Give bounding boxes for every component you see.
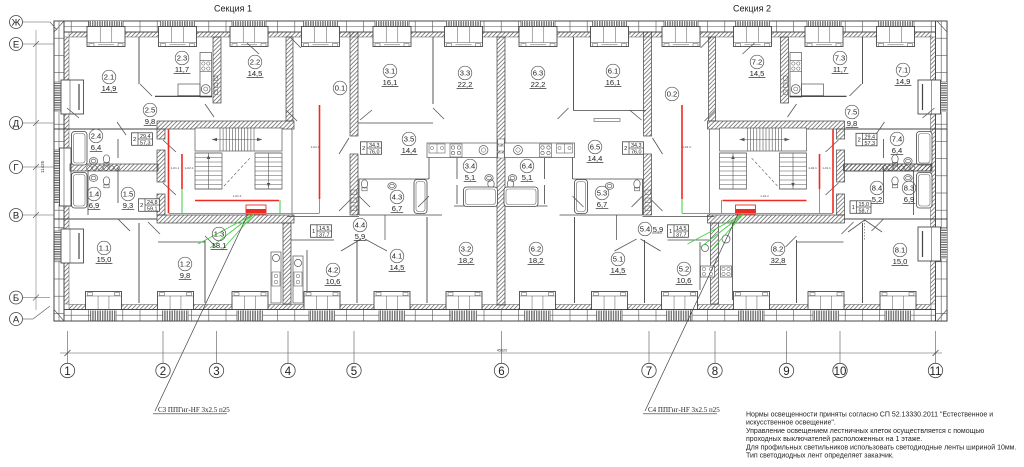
svg-text:29,4: 29,4 bbox=[865, 135, 876, 141]
svg-text:14,5: 14,5 bbox=[676, 226, 687, 232]
svg-text:34,3: 34,3 bbox=[369, 143, 380, 149]
svg-text:10,6: 10,6 bbox=[677, 276, 692, 285]
svg-text:18,2: 18,2 bbox=[529, 256, 544, 265]
svg-text:проходных выключателей располо: проходных выключателей расположенных на … bbox=[746, 435, 922, 443]
svg-text:2: 2 bbox=[160, 366, 166, 378]
svg-text:22,2: 22,2 bbox=[531, 80, 546, 89]
svg-text:9,8: 9,8 bbox=[847, 119, 858, 128]
svg-text:5.1: 5.1 bbox=[613, 255, 624, 264]
svg-text:9,8: 9,8 bbox=[145, 117, 156, 126]
svg-text:Управление освещением лестничн: Управление освещением лестничных клеток … bbox=[746, 428, 984, 435]
svg-text:15,0: 15,0 bbox=[859, 202, 870, 208]
svg-text:22,2: 22,2 bbox=[458, 80, 473, 89]
svg-text:76,0: 76,0 bbox=[631, 149, 642, 155]
svg-text:Г: Г bbox=[13, 162, 18, 173]
svg-text:14,5: 14,5 bbox=[611, 266, 626, 275]
svg-text:18,1: 18,1 bbox=[212, 241, 227, 250]
svg-text:Ж: Ж bbox=[12, 17, 21, 28]
svg-text:1-01.2: 1-01.2 bbox=[760, 194, 769, 198]
svg-text:В: В bbox=[13, 210, 19, 221]
svg-text:3: 3 bbox=[213, 366, 219, 378]
svg-text:14,5: 14,5 bbox=[750, 69, 765, 78]
svg-text:5.3: 5.3 bbox=[597, 189, 608, 198]
svg-text:6.5: 6.5 bbox=[590, 143, 601, 152]
svg-text:6,9: 6,9 bbox=[89, 201, 100, 210]
svg-text:14,9: 14,9 bbox=[896, 77, 911, 86]
svg-text:1: 1 bbox=[64, 366, 70, 378]
svg-text:6: 6 bbox=[498, 366, 504, 378]
svg-text:3.5: 3.5 bbox=[404, 135, 415, 144]
svg-text:7: 7 bbox=[646, 366, 652, 378]
svg-text:29,4: 29,4 bbox=[140, 134, 151, 140]
svg-text:24,8: 24,8 bbox=[147, 200, 158, 206]
svg-text:1-01.1: 1-01.1 bbox=[171, 166, 180, 170]
svg-text:76,0: 76,0 bbox=[369, 149, 380, 155]
svg-text:5,1: 5,1 bbox=[522, 173, 533, 182]
svg-text:Нормы освещенности приняты сог: Нормы освещенности приняты согласно СП 5… bbox=[746, 412, 993, 419]
svg-text:16,1: 16,1 bbox=[606, 78, 621, 87]
svg-text:6,7: 6,7 bbox=[392, 204, 403, 213]
svg-text:8.1: 8.1 bbox=[895, 246, 906, 255]
svg-text:искусственное освещение".: искусственное освещение". bbox=[746, 420, 836, 427]
svg-text:4.3: 4.3 bbox=[392, 193, 403, 202]
svg-text:7.5: 7.5 bbox=[847, 108, 858, 117]
svg-text:Для профильных светильников ис: Для профильных светильников использовать… bbox=[746, 443, 1016, 451]
svg-text:6,9: 6,9 bbox=[904, 195, 915, 204]
svg-text:6.4: 6.4 bbox=[522, 162, 533, 171]
svg-text:5,9: 5,9 bbox=[355, 232, 366, 241]
svg-text:14,5: 14,5 bbox=[319, 226, 330, 232]
svg-text:9,8: 9,8 bbox=[180, 271, 191, 280]
svg-text:15,0: 15,0 bbox=[97, 255, 112, 264]
svg-text:15,0: 15,0 bbox=[893, 257, 908, 266]
svg-text:7.3: 7.3 bbox=[835, 54, 846, 63]
svg-text:С4 ППГнг-HF 3х2.5 п25: С4 ППГнг-HF 3х2.5 п25 bbox=[648, 406, 720, 414]
svg-text:6,4: 6,4 bbox=[91, 143, 102, 152]
svg-text:1-01.1: 1-01.1 bbox=[822, 166, 831, 170]
svg-text:2: 2 bbox=[624, 146, 627, 152]
svg-text:Секция 2: Секция 2 bbox=[733, 4, 771, 14]
svg-text:2.2: 2.2 bbox=[250, 58, 261, 67]
svg-text:4: 4 bbox=[285, 366, 292, 378]
svg-text:1: 1 bbox=[669, 229, 672, 235]
svg-text:0.1: 0.1 bbox=[335, 84, 346, 93]
svg-text:1-02.1: 1-02.1 bbox=[808, 166, 817, 170]
svg-text:8: 8 bbox=[712, 366, 718, 378]
svg-text:1: 1 bbox=[312, 229, 315, 235]
svg-text:5,1: 5,1 bbox=[465, 173, 476, 182]
svg-text:32,8: 32,8 bbox=[771, 256, 786, 265]
svg-text:11,7: 11,7 bbox=[175, 65, 189, 74]
svg-text:7.2: 7.2 bbox=[752, 58, 763, 67]
svg-text:3.3: 3.3 bbox=[460, 69, 471, 78]
svg-text:1: 1 bbox=[852, 205, 855, 211]
svg-text:6,4: 6,4 bbox=[892, 146, 903, 155]
svg-text:1-02.1: 1-02.1 bbox=[185, 166, 194, 170]
svg-text:58,7: 58,7 bbox=[859, 208, 870, 214]
svg-text:9,3: 9,3 bbox=[123, 201, 134, 210]
svg-text:1-01.3: 1-01.3 bbox=[682, 145, 691, 149]
svg-text:1-01.3: 1-01.3 bbox=[311, 145, 320, 149]
svg-text:14,4: 14,4 bbox=[588, 154, 603, 163]
svg-text:5: 5 bbox=[351, 366, 357, 378]
svg-text:3.2: 3.2 bbox=[461, 245, 472, 254]
svg-text:1-01.2: 1-01.2 bbox=[233, 194, 242, 198]
svg-text:Тип светодиодных лент определя: Тип светодиодных лент определяет заказчи… bbox=[746, 453, 894, 460]
svg-text:16,1: 16,1 bbox=[383, 78, 398, 87]
svg-text:Е: Е bbox=[13, 39, 19, 50]
svg-text:34,3: 34,3 bbox=[631, 143, 642, 149]
svg-text:3.4: 3.4 bbox=[465, 162, 476, 171]
svg-text:7.1: 7.1 bbox=[898, 66, 909, 75]
svg-text:57,3: 57,3 bbox=[865, 141, 876, 147]
svg-text:57,3: 57,3 bbox=[140, 140, 151, 146]
svg-text:6,7: 6,7 bbox=[597, 200, 608, 209]
svg-text:А: А bbox=[13, 314, 20, 325]
svg-text:С3 ППГнг-HF 3х2.5 п25: С3 ППГнг-HF 3х2.5 п25 bbox=[158, 406, 230, 414]
svg-text:2: 2 bbox=[133, 137, 136, 143]
svg-text:5,9: 5,9 bbox=[653, 225, 664, 234]
svg-text:8.2: 8.2 bbox=[773, 245, 784, 254]
svg-text:2: 2 bbox=[362, 146, 365, 152]
svg-text:14,9: 14,9 bbox=[102, 84, 117, 93]
svg-text:1.3: 1.3 bbox=[214, 230, 225, 239]
svg-text:8.4: 8.4 bbox=[872, 184, 883, 193]
svg-text:2.3: 2.3 bbox=[177, 54, 188, 63]
svg-text:2.5: 2.5 bbox=[145, 106, 156, 115]
svg-text:14,5: 14,5 bbox=[390, 263, 405, 272]
svg-text:2.1: 2.1 bbox=[104, 73, 115, 82]
svg-text:14,4: 14,4 bbox=[402, 146, 417, 155]
svg-text:10: 10 bbox=[834, 366, 847, 378]
svg-text:2.4: 2.4 bbox=[91, 132, 102, 141]
svg-text:Д: Д bbox=[13, 118, 20, 129]
svg-text:3.1: 3.1 bbox=[385, 67, 396, 76]
svg-text:5.2: 5.2 bbox=[679, 265, 690, 274]
svg-text:Секция 1: Секция 1 bbox=[214, 4, 252, 14]
svg-text:2: 2 bbox=[140, 203, 143, 209]
svg-text:37,7: 37,7 bbox=[676, 232, 687, 238]
svg-text:14,5: 14,5 bbox=[248, 69, 263, 78]
svg-text:11: 11 bbox=[930, 366, 942, 378]
svg-text:6.2: 6.2 bbox=[531, 245, 542, 254]
svg-text:45620: 45620 bbox=[497, 349, 508, 353]
svg-text:Б: Б bbox=[13, 293, 19, 304]
svg-text:4.2: 4.2 bbox=[328, 266, 339, 275]
svg-text:1.2: 1.2 bbox=[180, 260, 191, 269]
svg-text:18,2: 18,2 bbox=[459, 256, 474, 265]
svg-text:10,6: 10,6 bbox=[326, 277, 341, 286]
svg-text:6.1: 6.1 bbox=[608, 67, 619, 76]
svg-text:8.3: 8.3 bbox=[904, 184, 915, 193]
svg-text:5,2: 5,2 bbox=[872, 195, 883, 204]
svg-text:0.2: 0.2 bbox=[667, 90, 678, 99]
svg-text:11425: 11425 bbox=[40, 160, 45, 173]
svg-text:1.1: 1.1 bbox=[99, 244, 110, 253]
svg-text:1.5: 1.5 bbox=[123, 190, 134, 199]
svg-text:1.4: 1.4 bbox=[89, 190, 100, 199]
svg-text:9: 9 bbox=[783, 366, 789, 378]
svg-text:4.1: 4.1 bbox=[392, 252, 403, 261]
svg-text:6.3: 6.3 bbox=[533, 69, 544, 78]
svg-text:4.4: 4.4 bbox=[355, 221, 366, 230]
svg-text:11,7: 11,7 bbox=[833, 65, 847, 74]
svg-text:5.4: 5.4 bbox=[640, 225, 651, 234]
svg-text:37,7: 37,7 bbox=[319, 232, 330, 238]
svg-text:7.4: 7.4 bbox=[892, 135, 903, 144]
svg-text:59,1: 59,1 bbox=[147, 206, 158, 212]
svg-text:2: 2 bbox=[858, 138, 861, 144]
